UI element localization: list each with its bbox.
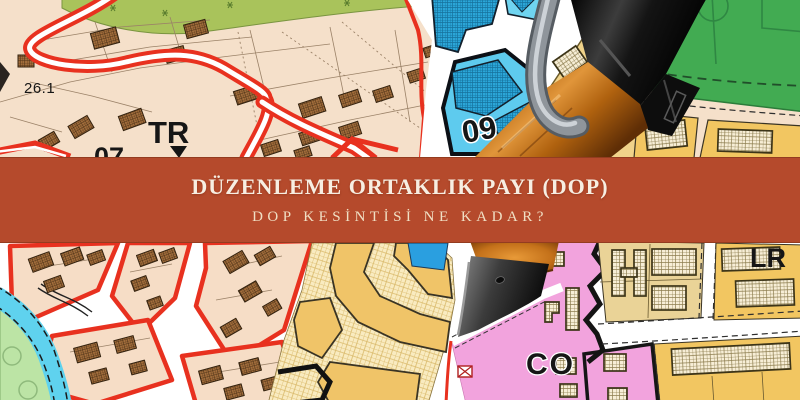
label-tr: TR [148, 115, 189, 150]
label-lr: LR [750, 243, 786, 273]
title-banner: DÜZENLEME ORTAKLIK PAYI (DOP) DOP KESİNT… [0, 157, 800, 243]
banner-subtitle: DOP KESİNTİSİ NE KADAR? [252, 209, 548, 226]
banner-title: DÜZENLEME ORTAKLIK PAYI (DOP) [191, 174, 608, 200]
x-marked-parcel [458, 366, 472, 377]
label-26-1: 26.1 [24, 80, 55, 97]
label-co: CO [526, 348, 575, 381]
hero-image: 26.1 TR 07 09 [0, 0, 800, 400]
